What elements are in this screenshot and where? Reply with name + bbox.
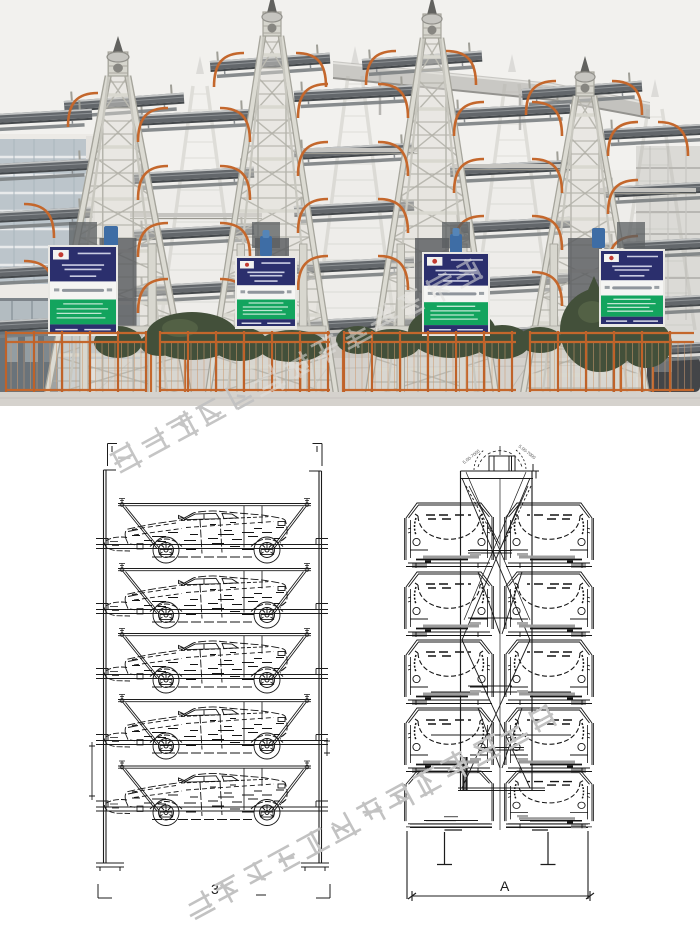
svg-text:A: A: [500, 878, 510, 894]
